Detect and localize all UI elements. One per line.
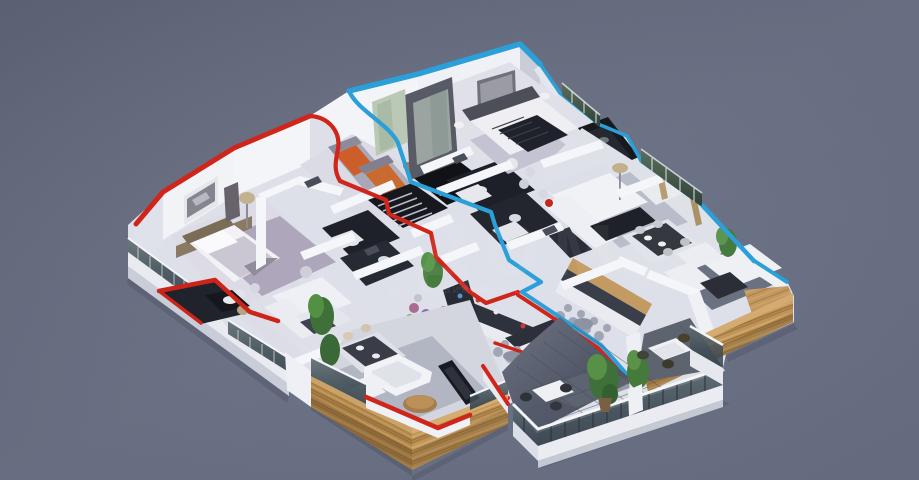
svg-text:ДОМ: ДОМ [418, 211, 627, 291]
svg-text:вся недвижимость: вся недвижимость [388, 282, 523, 296]
